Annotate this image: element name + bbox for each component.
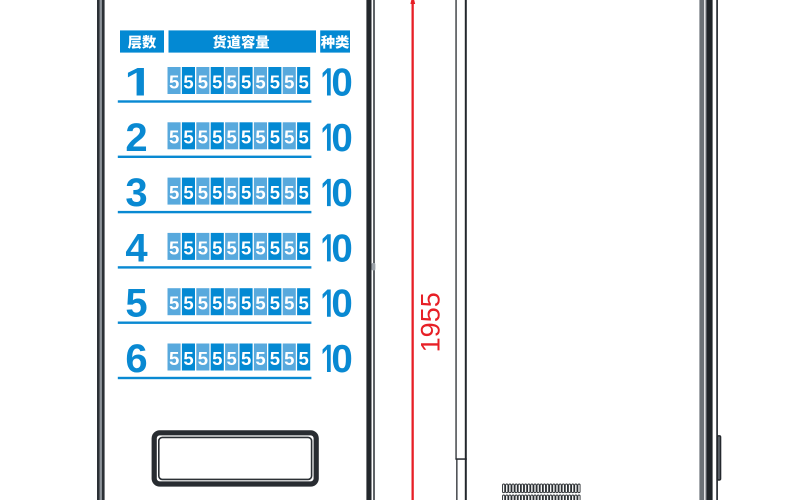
svg-text:5: 5: [198, 293, 208, 314]
svg-text:5: 5: [255, 71, 265, 92]
svg-text:5: 5: [183, 71, 193, 92]
svg-text:5: 5: [227, 127, 237, 148]
svg-text:5: 5: [241, 127, 251, 148]
svg-text:5: 5: [183, 348, 193, 369]
svg-text:0: 0: [331, 227, 352, 270]
svg-text:5: 5: [227, 348, 237, 369]
svg-text:5: 5: [255, 237, 265, 258]
svg-text:5: 5: [169, 237, 179, 258]
svg-text:0: 0: [331, 338, 352, 381]
svg-text:5: 5: [270, 348, 280, 369]
svg-text:5: 5: [212, 237, 222, 258]
svg-text:5: 5: [169, 127, 179, 148]
svg-text:5: 5: [299, 293, 309, 314]
svg-text:5: 5: [227, 71, 237, 92]
svg-text:5: 5: [169, 293, 179, 314]
svg-text:5: 5: [212, 348, 222, 369]
svg-text:5: 5: [255, 348, 265, 369]
svg-text:5: 5: [270, 127, 280, 148]
svg-text:5: 5: [198, 71, 208, 92]
svg-text:5: 5: [183, 182, 193, 203]
svg-text:5: 5: [198, 182, 208, 203]
svg-text:5: 5: [284, 237, 294, 258]
svg-text:0: 0: [331, 62, 352, 105]
svg-text:5: 5: [299, 348, 309, 369]
svg-text:5: 5: [241, 71, 251, 92]
svg-text:5: 5: [183, 293, 193, 314]
svg-text:5: 5: [198, 237, 208, 258]
svg-text:5: 5: [227, 182, 237, 203]
svg-text:5: 5: [241, 237, 251, 258]
svg-text:5: 5: [270, 237, 280, 258]
svg-text:5: 5: [241, 293, 251, 314]
svg-text:5: 5: [255, 293, 265, 314]
svg-text:5: 5: [255, 182, 265, 203]
svg-text:5: 5: [183, 237, 193, 258]
svg-text:5: 5: [212, 127, 222, 148]
svg-text:5: 5: [299, 182, 309, 203]
svg-text:2: 2: [125, 116, 147, 160]
svg-text:5: 5: [270, 293, 280, 314]
svg-text:5: 5: [241, 348, 251, 369]
svg-text:1955: 1955: [416, 292, 446, 352]
svg-text:5: 5: [284, 182, 294, 203]
svg-text:5: 5: [183, 127, 193, 148]
svg-text:5: 5: [227, 293, 237, 314]
svg-text:3: 3: [125, 171, 147, 215]
svg-text:5: 5: [198, 348, 208, 369]
svg-text:5: 5: [169, 71, 179, 92]
svg-text:5: 5: [284, 71, 294, 92]
svg-text:5: 5: [284, 348, 294, 369]
svg-text:0: 0: [331, 117, 352, 160]
svg-text:5: 5: [169, 348, 179, 369]
svg-text:0: 0: [331, 283, 352, 326]
svg-text:5: 5: [270, 182, 280, 203]
svg-text:5: 5: [299, 127, 309, 148]
svg-text:5: 5: [255, 127, 265, 148]
svg-text:5: 5: [212, 293, 222, 314]
svg-text:5: 5: [299, 71, 309, 92]
svg-text:5: 5: [241, 182, 251, 203]
svg-text:5: 5: [284, 293, 294, 314]
svg-text:5: 5: [212, 182, 222, 203]
svg-text:5: 5: [198, 127, 208, 148]
svg-text:5: 5: [284, 127, 294, 148]
svg-text:5: 5: [299, 237, 309, 258]
svg-text:5: 5: [212, 71, 222, 92]
svg-text:5: 5: [125, 282, 147, 326]
svg-text:4: 4: [125, 226, 148, 270]
svg-text:6: 6: [125, 337, 147, 381]
svg-text:5: 5: [169, 182, 179, 203]
svg-text:5: 5: [270, 71, 280, 92]
svg-text:5: 5: [227, 237, 237, 258]
svg-text:0: 0: [331, 172, 352, 215]
